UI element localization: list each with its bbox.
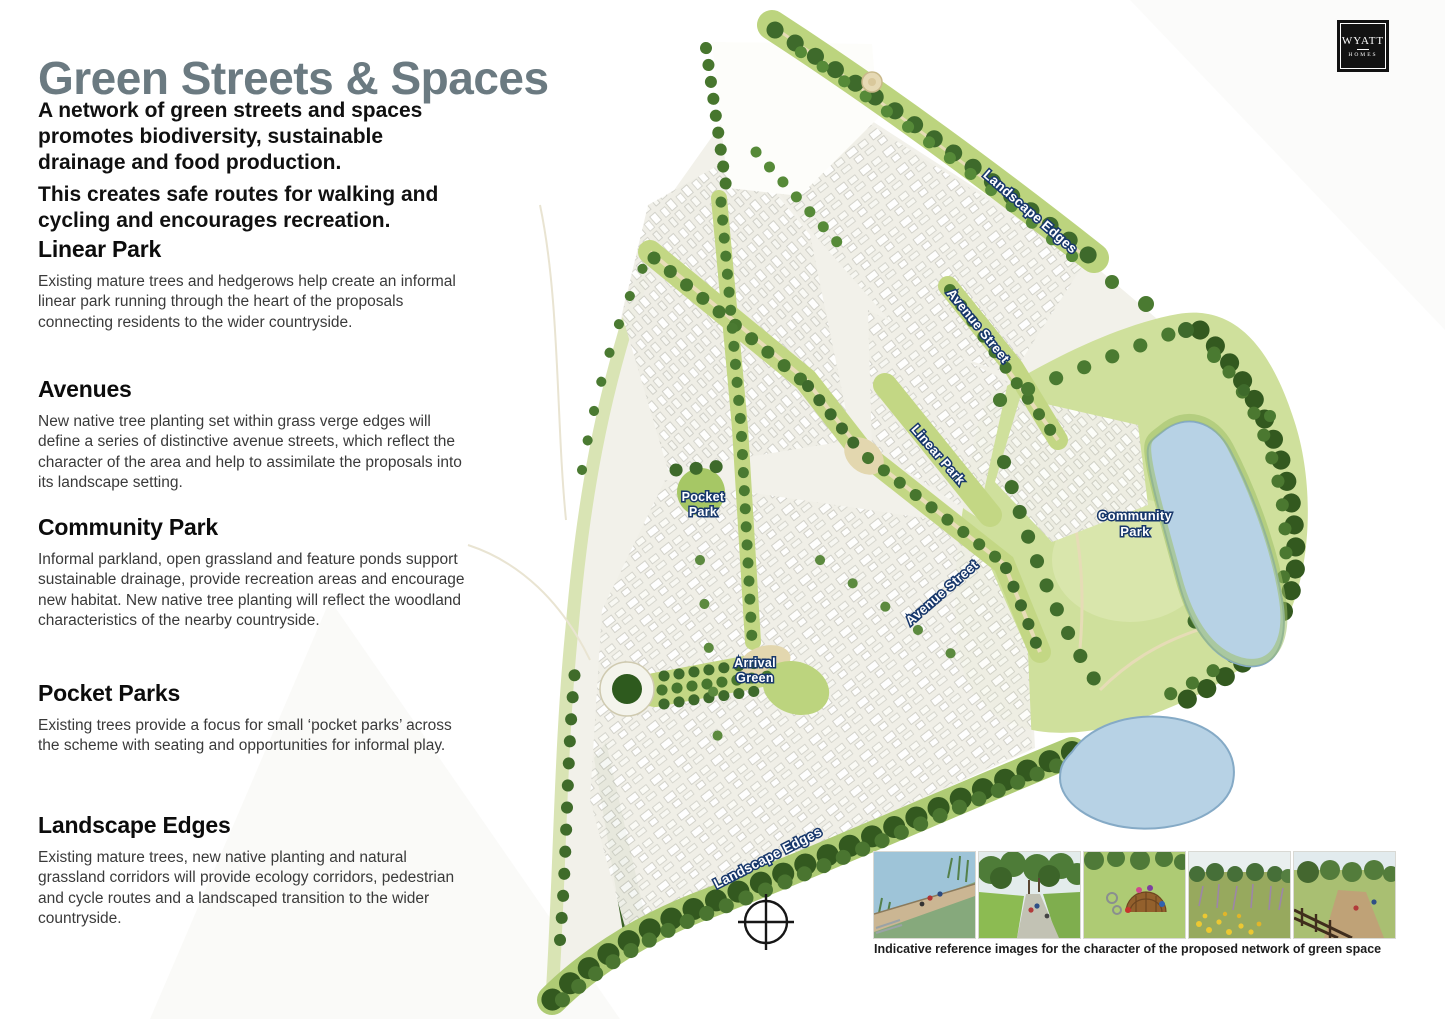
section-heading: Avenues	[38, 376, 476, 403]
section-body: Existing mature trees, new native planti…	[38, 848, 476, 930]
label-pocket-park-2: Park	[689, 505, 717, 519]
section-avenues: Avenues New native tree planting set wit…	[38, 376, 476, 494]
wyatt-homes-logo: WYATT HOMES	[1337, 20, 1389, 72]
section-heading: Community Park	[38, 514, 476, 541]
main-roundabout	[600, 662, 654, 716]
logo-subtitle: HOMES	[1348, 52, 1377, 58]
intro-paragraph-2: This creates safe routes for walking and…	[38, 182, 468, 234]
label-pocket-park-1: Pocket	[682, 490, 725, 504]
logo-divider	[1357, 49, 1369, 50]
photo-tree-lined-path	[979, 852, 1080, 938]
section-body: New native tree planting set within gras…	[38, 412, 476, 494]
label-community-park-2: Park	[1120, 524, 1150, 539]
reference-image-strip	[874, 852, 1395, 938]
photo-park-playground	[1294, 852, 1395, 938]
section-heading: Linear Park	[38, 236, 476, 263]
section-heading: Landscape Edges	[38, 812, 476, 839]
section-landscape-edges: Landscape Edges Existing mature trees, n…	[38, 812, 476, 930]
section-community-park: Community Park Informal parkland, open g…	[38, 514, 476, 632]
section-body: Informal parkland, open grassland and fe…	[38, 550, 476, 632]
photo-wildflower-meadow	[1189, 852, 1290, 938]
section-body: Existing mature trees and hedgerows help…	[38, 272, 476, 333]
logo-frame: WYATT HOMES	[1340, 23, 1386, 69]
page-title: Green Streets & Spaces	[38, 51, 598, 105]
label-arrival-green-1: Arrival	[734, 656, 776, 670]
photo-natural-play-area	[1084, 852, 1185, 938]
section-heading: Pocket Parks	[38, 680, 476, 707]
label-arrival-green-2: Green	[736, 671, 774, 685]
section-pocket-parks: Pocket Parks Existing trees provide a fo…	[38, 680, 476, 757]
photo-pond-boardwalk	[874, 852, 975, 938]
section-body: Existing trees provide a focus for small…	[38, 716, 476, 757]
north-roundabout	[862, 72, 882, 92]
photo-strip-caption: Indicative reference images for the char…	[874, 942, 1404, 956]
label-community-park-1: Community	[1098, 508, 1173, 523]
intro-text: A network of green streets and spaces pr…	[38, 98, 468, 240]
section-linear-park: Linear Park Existing mature trees and he…	[38, 236, 476, 333]
intro-paragraph-1: A network of green streets and spaces pr…	[38, 98, 468, 176]
logo-name: WYATT	[1342, 35, 1384, 47]
